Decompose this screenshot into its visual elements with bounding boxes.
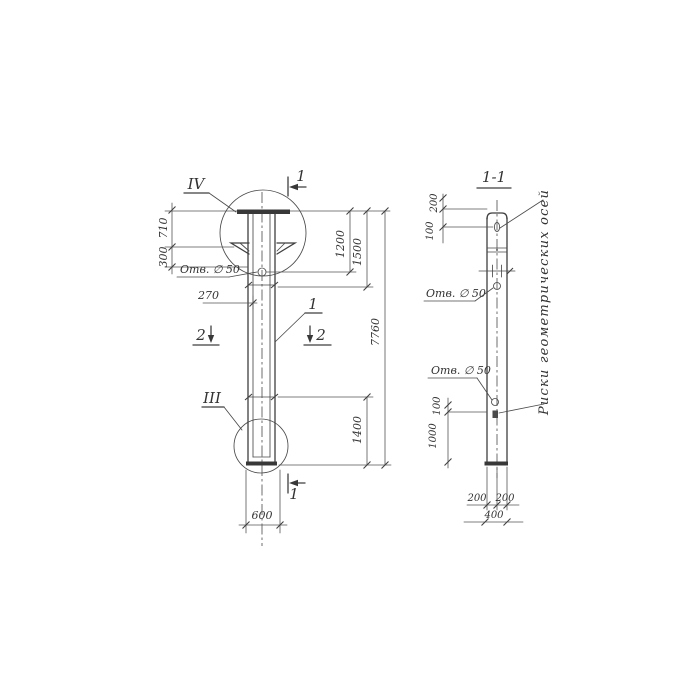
column-shaft-outline	[248, 214, 275, 462]
column-base-plate	[246, 462, 277, 466]
part-callout-1: 1	[275, 295, 322, 342]
dim-text-100-top: 100	[425, 221, 436, 241]
joint-line-lower	[245, 394, 278, 400]
dim-text-7760: 7760	[369, 318, 382, 346]
dim-text-600: 600	[252, 509, 273, 522]
section-cut-2-left: 2	[193, 326, 219, 345]
left-view-column-elevation: 710 300 1200 1500 7760 1400	[157, 167, 391, 546]
dim-text-300: 300	[157, 247, 170, 268]
detail-label-III: III	[202, 389, 242, 430]
joint-line-upper	[245, 282, 278, 288]
section-base-plate	[485, 462, 509, 466]
section-title-text: 1-1	[482, 168, 506, 186]
dimension-100-1000-bottom: 100 1000	[428, 396, 487, 468]
section-cut-2-right: 2	[304, 326, 331, 345]
dim-text-1400: 1400	[351, 416, 364, 444]
dimension-600: 600	[239, 470, 287, 533]
section-cut-2-right-label: 2	[315, 326, 326, 344]
section-cut-1-bottom-label: 1	[289, 485, 299, 503]
section-cut-1-top: 1	[288, 167, 306, 196]
section-cut-1-top-label: 1	[296, 167, 306, 185]
dim-text-1500: 1500	[351, 238, 364, 266]
dim-text-1000: 1000	[428, 423, 439, 449]
hole-callout-section-upper: Отв. ∅ 50	[424, 287, 493, 301]
drawing-canvas: 710 300 1200 1500 7760 1400	[0, 0, 700, 700]
column-top-plate	[237, 210, 290, 215]
dim-text-100-bottom: 100	[432, 396, 443, 416]
dim-text-200-right: 200	[494, 493, 515, 504]
section-view-1-1: 1-1	[424, 168, 552, 526]
technical-drawing-page: 710 300 1200 1500 7760 1400	[0, 0, 700, 700]
detail-IV-text: IV	[187, 175, 207, 193]
dim-text-1200: 1200	[334, 230, 347, 258]
hole-callout-left-view: Отв. ∅ 50	[177, 263, 257, 277]
hole-callout-text: Отв. ∅ 50	[180, 263, 240, 276]
cap-flange-left	[231, 243, 249, 254]
axis-mark-square	[493, 411, 499, 419]
dim-text-710: 710	[157, 218, 170, 239]
hole-50-section-lower	[492, 399, 499, 406]
part-callout-text: 1	[308, 295, 318, 313]
hole-callout-section-lower: Отв. ∅ 50	[428, 364, 492, 400]
hole-callout-upper-text: Отв. ∅ 50	[426, 287, 486, 300]
dim-text-200-left: 200	[466, 493, 487, 504]
hole-callout-lower-text: Отв. ∅ 50	[431, 364, 491, 377]
section-title: 1-1	[477, 168, 511, 188]
detail-label-IV: IV	[184, 175, 236, 212]
cap-flange-right	[277, 243, 295, 254]
dim-text-200-top: 200	[429, 193, 440, 214]
dimension-400-bottom: 200 200 400	[464, 467, 523, 526]
detail-III-text: III	[202, 389, 222, 407]
dim-text-270: 270	[197, 289, 219, 302]
dimension-right-stack: 1200 1500 7760 1400	[266, 208, 391, 469]
dimension-200-100-top: 200 100	[425, 193, 493, 243]
dim-text-400: 400	[483, 510, 504, 521]
section-cut-1-bottom: 1	[288, 474, 305, 503]
section-cut-2-left-label: 2	[195, 326, 206, 344]
axes-note-text: Риски геометрических осей	[537, 189, 552, 416]
